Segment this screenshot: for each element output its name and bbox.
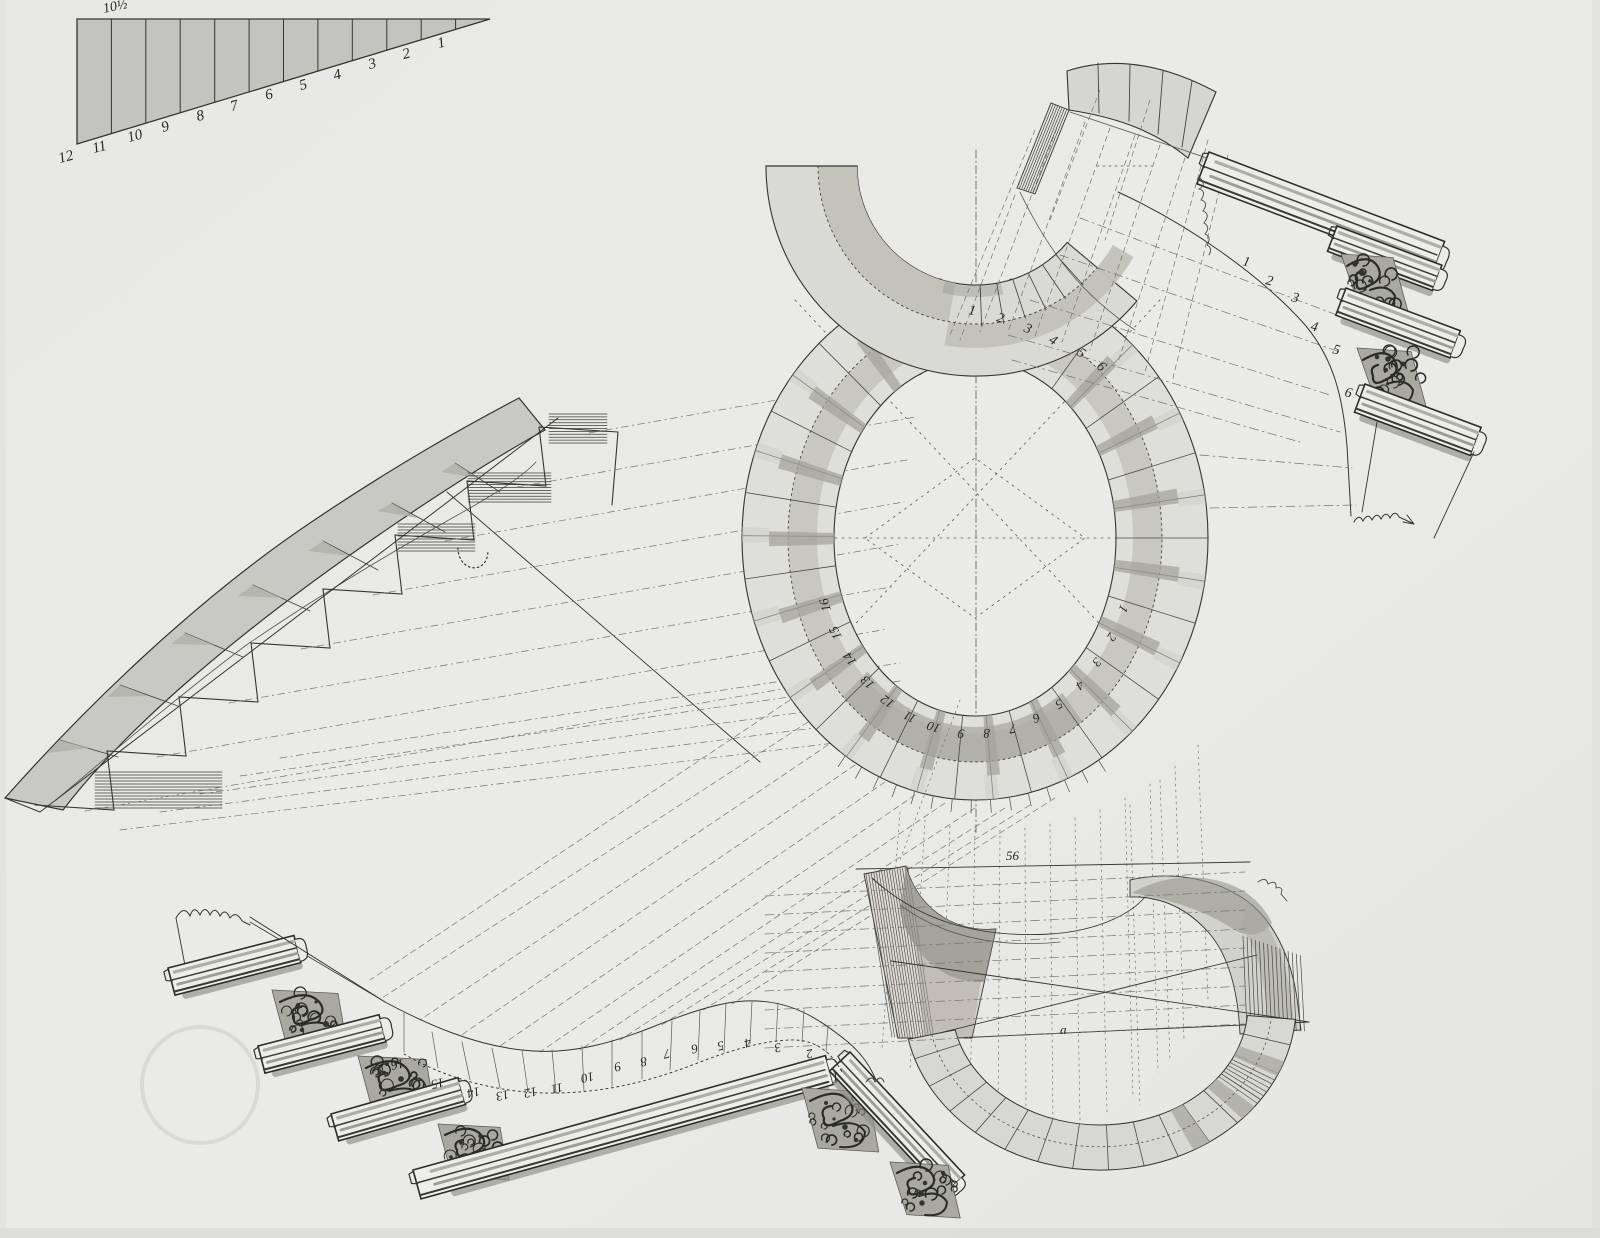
svg-text:a: a [1060,1022,1067,1037]
svg-text:56: 56 [1006,848,1020,863]
svg-text:8: 8 [983,726,990,741]
